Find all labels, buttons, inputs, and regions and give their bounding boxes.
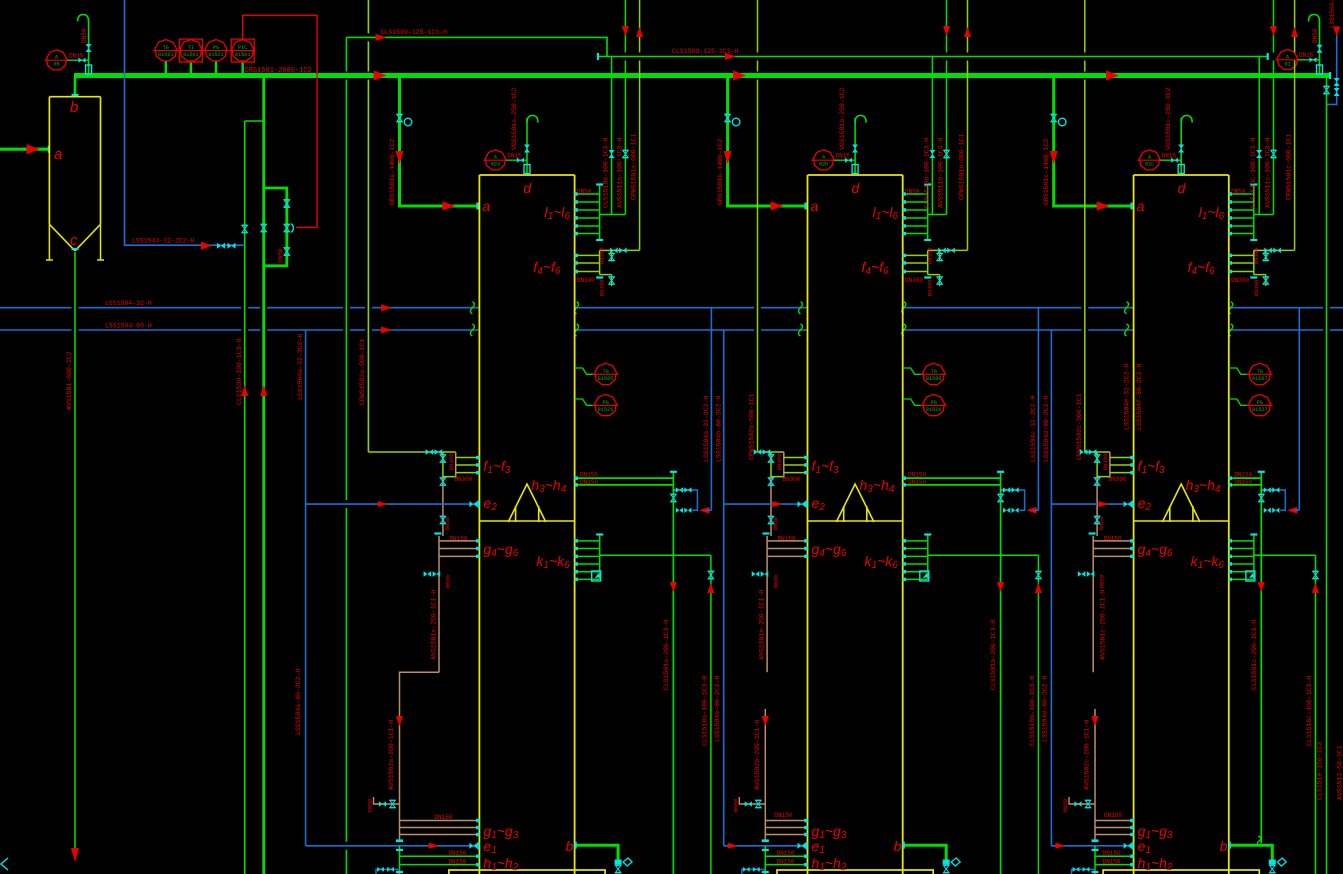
svg-text:a: a: [811, 198, 819, 214]
svg-text:DN100: DN100: [776, 453, 783, 470]
svg-text:CLS1509-125-1C3-H: CLS1509-125-1C3-H: [672, 48, 738, 55]
svg-text:81566: 81566: [926, 376, 942, 382]
svg-text:DN50: DN50: [773, 575, 780, 588]
svg-text:DN150: DN150: [448, 858, 466, 865]
svg-text:DN150: DN150: [448, 850, 466, 857]
svg-text:b: b: [70, 99, 78, 116]
svg-text:81501: 81501: [235, 52, 251, 58]
svg-text:DN150: DN150: [777, 858, 795, 865]
svg-text:DN150: DN150: [908, 479, 926, 486]
svg-text:CPWS1501c-600-1C1: CPWS1501c-600-1C1: [1286, 134, 1293, 200]
svg-text:DN150: DN150: [774, 812, 792, 819]
svg-text:AVS1511b-100-1C3-H: AVS1511b-100-1C3-H: [938, 138, 945, 208]
svg-text:CPWS1501a-600-1C1: CPWS1501a-600-1C1: [631, 134, 638, 200]
svg-text:AVS1501a-250-1C1-H: AVS1501a-250-1C1-H: [430, 590, 437, 660]
svg-text:AVS1502a-200-1C1-H: AVS1502a-200-1C1-H: [388, 720, 395, 790]
svg-text:CLS1501b-200-1C3-H: CLS1501b-200-1C3-H: [990, 620, 997, 690]
svg-text:TG: TG: [163, 45, 169, 51]
svg-text:a: a: [1137, 198, 1145, 214]
svg-text:DN150: DN150: [1234, 479, 1252, 486]
svg-text:PG: PG: [213, 45, 219, 51]
svg-text:DN50: DN50: [905, 189, 920, 196]
svg-text:DN150: DN150: [908, 472, 926, 479]
svg-text:d: d: [1178, 180, 1187, 196]
svg-text:DN150: DN150: [434, 814, 452, 821]
svg-text:AVS1501b-250-1C1-H: AVS1501b-250-1C1-H: [759, 590, 766, 660]
svg-text:DN150: DN150: [1103, 858, 1121, 865]
svg-text:CLS1501c-200-1C3-H: CLS1501c-200-1C3-H: [1251, 620, 1258, 690]
svg-text:TG: TG: [931, 369, 937, 375]
svg-text:AVS1502c-200-1C1-H: AVS1502c-200-1C1-H: [1084, 720, 1091, 790]
svg-text:AVS1501-600-1C2: AVS1501-600-1C2: [66, 351, 73, 410]
svg-text:CLS1501a-200-1C3-H: CLS1501a-200-1C3-H: [663, 620, 670, 690]
svg-text:DN50: DN50: [577, 189, 592, 196]
svg-text:81526: 81526: [926, 407, 942, 413]
svg-text:81525: 81525: [598, 407, 614, 413]
svg-text:02b: 02b: [819, 162, 828, 168]
svg-text:TG: TG: [602, 369, 608, 375]
svg-text:DN50: DN50: [1099, 575, 1106, 588]
svg-text:AVS1511c-100-1C3-H: AVS1511c-100-1C3-H: [1265, 138, 1272, 208]
svg-text:b: b: [566, 838, 574, 854]
svg-text:DN50: DN50: [772, 517, 779, 530]
svg-text:LSS1504d-80-2C2-H: LSS1504d-80-2C2-H: [1043, 396, 1050, 462]
svg-text:LSS1504e-32-2C2-H: LSS1504e-32-2C2-H: [1124, 364, 1131, 430]
svg-text:b: b: [894, 838, 902, 854]
svg-text:DN300: DN300: [1109, 476, 1127, 483]
svg-text:LSS1504b-80-2C2-H: LSS1504b-80-2C2-H: [714, 676, 721, 742]
svg-text:LSS1504c-32-2C2-H: LSS1504c-32-2C2-H: [1030, 396, 1037, 462]
svg-text:TI: TI: [188, 45, 194, 51]
svg-text:DN300: DN300: [1231, 277, 1249, 284]
svg-text:LSS1504-80-H: LSS1504-80-H: [105, 323, 152, 330]
svg-text:CLS1518c-100-1C3-H: CLS1518c-100-1C3-H: [1306, 676, 1313, 746]
svg-text:DN50: DN50: [732, 799, 739, 812]
svg-text:d: d: [523, 180, 532, 196]
svg-text:DN15: DN15: [836, 153, 851, 160]
svg-text:81567: 81567: [1252, 376, 1268, 382]
svg-text:DN300: DN300: [783, 476, 801, 483]
svg-text:CLS1510c-100-1C3-H: CLS1510c-100-1C3-H: [1250, 138, 1257, 208]
svg-text:AVS1511a-100-1C3-H: AVS1511a-100-1C3-H: [616, 138, 623, 208]
svg-text:81561: 81561: [158, 52, 174, 58]
svg-text:CLS1518b-100-1C3-H: CLS1518b-100-1C3-H: [1029, 676, 1036, 746]
svg-text:DN50: DN50: [1312, 28, 1319, 43]
svg-text:CLS1518a-100-1C3-H: CLS1518a-100-1C3-H: [701, 676, 708, 746]
svg-text:GRS1501b-1400-1C2: GRS1501b-1400-1C2: [717, 139, 724, 205]
svg-text:06: 06: [53, 62, 59, 68]
svg-text:TG: TG: [1257, 369, 1263, 375]
svg-text:DN15: DN15: [1162, 153, 1177, 160]
svg-text:LSS1504f-80-2C2-H: LSS1504f-80-2C2-H: [1136, 364, 1143, 430]
svg-text:DN50: DN50: [1098, 517, 1105, 530]
svg-text:DN150: DN150: [1104, 812, 1122, 819]
svg-text:81521: 81521: [208, 52, 224, 58]
svg-text:VGS1501a-250-1C2: VGS1501a-250-1C2: [511, 87, 518, 150]
svg-text:CPWS1501b-600-1C1: CPWS1501b-600-1C1: [959, 134, 966, 200]
svg-text:DN100: DN100: [927, 279, 934, 296]
svg-text:DN100: DN100: [1253, 247, 1260, 264]
svg-text:DN15: DN15: [1299, 52, 1314, 59]
svg-text:DN50: DN50: [1231, 189, 1246, 196]
svg-text:DN300: DN300: [454, 476, 472, 483]
svg-text:LSS1504a-80-2C2-H: LSS1504a-80-2C2-H: [295, 669, 302, 735]
svg-text:81501: 81501: [183, 52, 199, 58]
svg-text:DN150: DN150: [580, 479, 598, 486]
svg-text:LSS1543-32-2C2-H: LSS1543-32-2C2-H: [132, 238, 195, 245]
svg-text:a: a: [482, 198, 490, 214]
svg-text:PG: PG: [1257, 400, 1263, 406]
svg-text:b: b: [1220, 838, 1228, 854]
svg-text:LSS1504-50: LSS1504-50: [1329, 0, 1336, 28]
svg-text:DN300: DN300: [577, 277, 595, 284]
svg-text:DN100: DN100: [448, 453, 455, 470]
svg-text:VGS1501b-250-1C2: VGS1501b-250-1C2: [839, 87, 846, 150]
svg-text:DN15: DN15: [507, 153, 522, 160]
svg-text:c: c: [70, 232, 78, 249]
svg-text:PG: PG: [931, 400, 937, 406]
svg-text:PG: PG: [602, 400, 608, 406]
svg-text:AVS1501c-250-1C1-H: AVS1501c-250-1C1-H: [1100, 590, 1107, 660]
svg-text:DN50: DN50: [444, 517, 451, 530]
svg-text:DN100: DN100: [1102, 453, 1109, 470]
svg-text:d: d: [852, 180, 861, 196]
svg-text:GRS1501a-1400-1C2: GRS1501a-1400-1C2: [389, 139, 396, 205]
svg-text:LSS1504a-32-2C2-H: LSS1504a-32-2C2-H: [703, 396, 710, 462]
svg-text:DN50: DN50: [367, 799, 374, 812]
svg-text:GRS1501-2000-1C2: GRS1501-2000-1C2: [245, 67, 312, 75]
svg-text:PIC: PIC: [238, 45, 247, 51]
svg-text:a: a: [54, 146, 62, 163]
svg-text:DN150: DN150: [777, 850, 795, 857]
svg-text:DN15: DN15: [69, 53, 84, 60]
svg-text:CPWS1502a-500-1C1: CPWS1502a-500-1C1: [359, 339, 366, 405]
svg-text:CLS1510a-100-1C3-H: CLS1510a-100-1C3-H: [603, 138, 610, 208]
svg-text:DN50: DN50: [1062, 799, 1069, 812]
svg-text:DN100: DN100: [599, 247, 606, 264]
svg-text:AVS1502b-200-1C1-H: AVS1502b-200-1C1-H: [754, 720, 761, 790]
svg-text:LSS1504b-80-2C2-H: LSS1504b-80-2C2-H: [716, 396, 723, 462]
svg-text:DN100: DN100: [599, 279, 606, 296]
svg-text:01: 01: [1284, 61, 1290, 67]
svg-text:CLS1519-150-1C3: CLS1519-150-1C3: [1317, 741, 1324, 800]
svg-text:81565: 81565: [598, 376, 614, 382]
svg-text:CLS1509-125-1C3-H: CLS1509-125-1C3-H: [381, 29, 447, 36]
svg-text:GRS1501c-1400-1C2: GRS1501c-1400-1C2: [1043, 139, 1050, 205]
svg-text:DN100: DN100: [927, 247, 934, 264]
svg-text:02c: 02c: [1145, 162, 1154, 168]
svg-text:DN50: DN50: [444, 575, 451, 588]
svg-text:02a: 02a: [491, 162, 500, 168]
svg-text:DN50: DN50: [81, 28, 88, 43]
svg-text:VGS1501c-250-1C2: VGS1501c-250-1C2: [1165, 87, 1172, 150]
svg-text:DN100: DN100: [1253, 279, 1260, 296]
svg-text:CPWS1502c-500-1C1: CPWS1502c-500-1C1: [1076, 394, 1083, 460]
svg-text:DN150: DN150: [580, 472, 598, 479]
svg-text:DN300: DN300: [905, 277, 923, 284]
svg-text:CLS1510b-100-1C3-H: CLS1510b-100-1C3-H: [923, 138, 930, 208]
svg-text:DN150: DN150: [1103, 850, 1121, 857]
svg-text:LSS1504a-32-2C2-H: LSS1504a-32-2C2-H: [297, 334, 304, 400]
svg-text:AVS1513-50-1C1: AVS1513-50-1C1: [1337, 745, 1343, 800]
svg-text:LSS1504-32-H: LSS1504-32-H: [105, 300, 152, 307]
svg-text:LSS1504d-80-2C2-H: LSS1504d-80-2C2-H: [1042, 676, 1049, 742]
svg-text:81527: 81527: [1252, 407, 1268, 413]
svg-text:DN150: DN150: [1234, 472, 1252, 479]
